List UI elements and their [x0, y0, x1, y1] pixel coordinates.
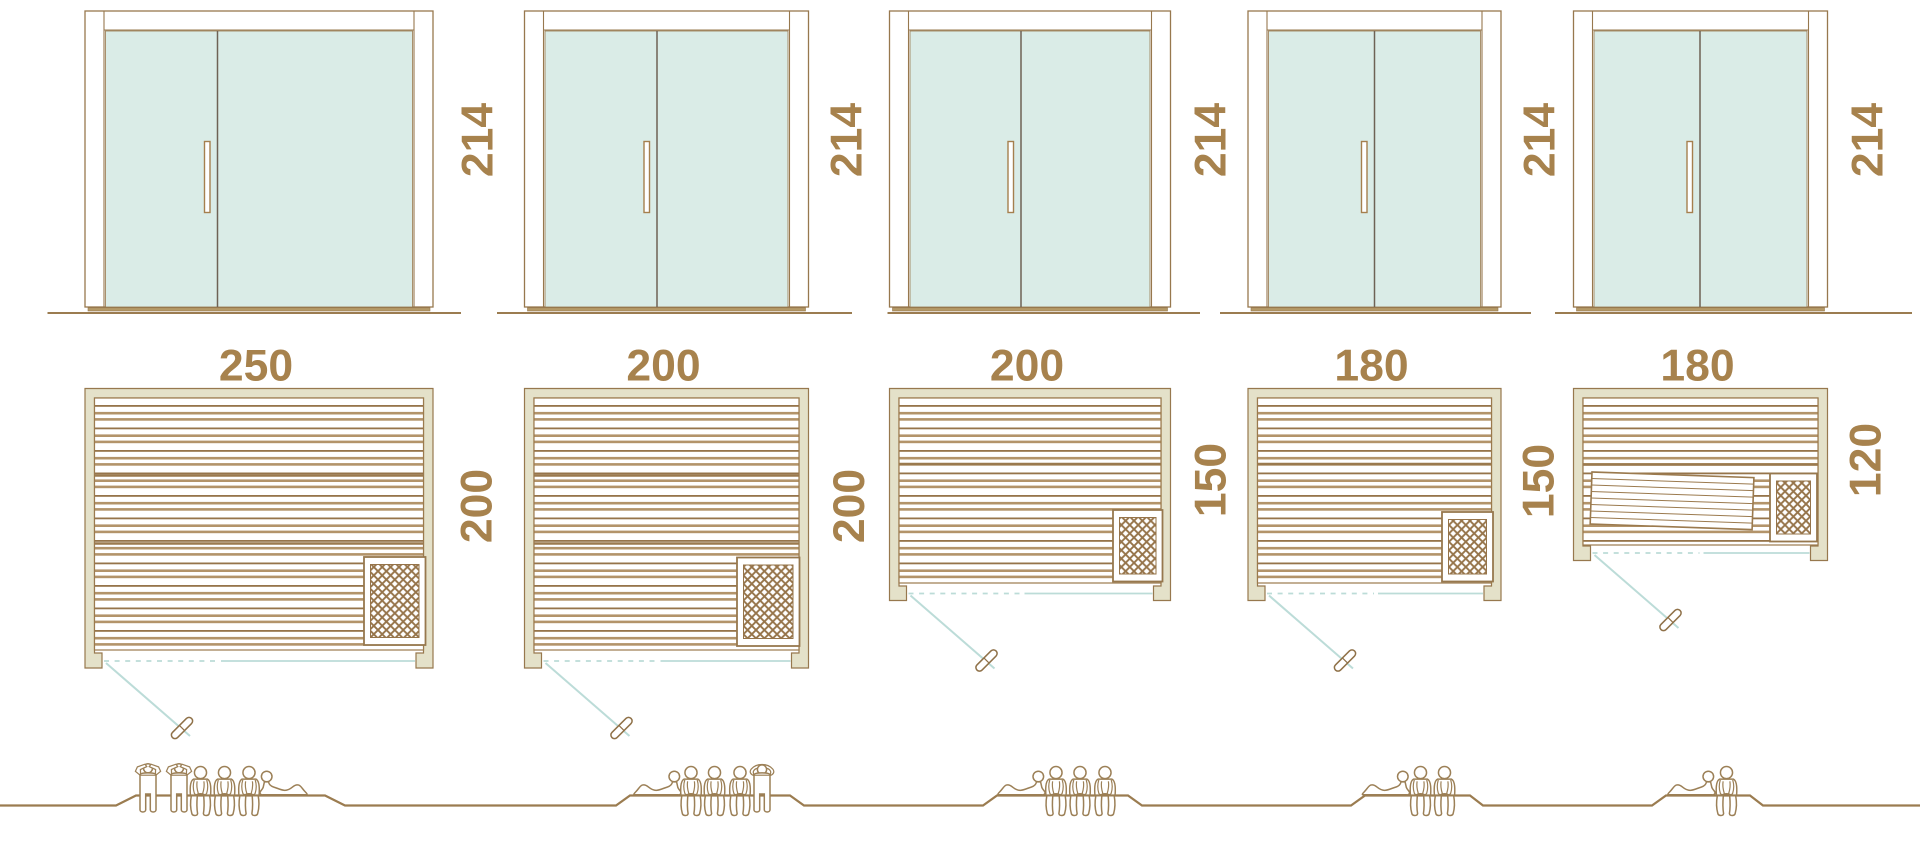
svg-text:214: 214: [823, 103, 872, 177]
svg-text:180: 180: [1334, 342, 1408, 391]
svg-text:214: 214: [1844, 103, 1893, 177]
svg-text:150: 150: [1515, 444, 1564, 518]
svg-text:200: 200: [626, 342, 700, 391]
svg-text:180: 180: [1660, 342, 1734, 391]
svg-text:150: 150: [1187, 443, 1236, 517]
svg-text:250: 250: [219, 342, 293, 391]
svg-text:200: 200: [825, 469, 874, 543]
svg-text:214: 214: [1187, 103, 1236, 177]
svg-text:214: 214: [454, 103, 503, 177]
svg-text:120: 120: [1842, 423, 1891, 497]
svg-text:200: 200: [990, 342, 1064, 391]
svg-text:200: 200: [453, 469, 502, 543]
svg-text:214: 214: [1516, 103, 1565, 177]
